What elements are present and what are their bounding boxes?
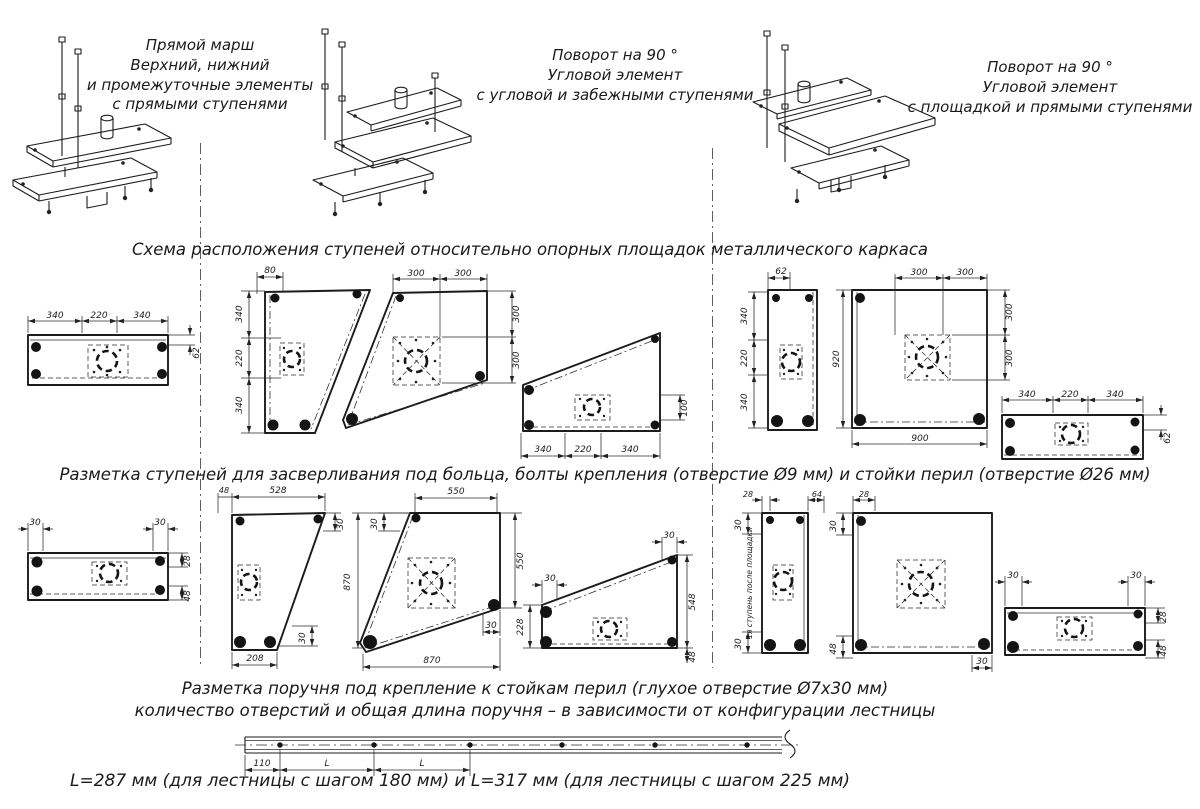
step-outline: [1005, 608, 1145, 655]
iso-bolts: [319, 91, 433, 216]
dim-label: 340: [740, 393, 750, 410]
dim-label: 48: [688, 651, 698, 663]
iso-steps: [313, 88, 471, 212]
dim-label: 28: [1159, 611, 1169, 623]
iso-corner-winder: [285, 20, 480, 240]
iso-posts: [322, 29, 438, 152]
dim-label: L: [419, 759, 424, 769]
handrail-heading: Разметка поручня под крепление к стойкам…: [85, 678, 985, 722]
drill-platform-square: 28 30 48 30: [830, 488, 1020, 698]
dim-label: 300: [910, 268, 927, 278]
dim-label: 28: [743, 490, 753, 499]
dim-label: 48: [183, 590, 193, 602]
dim-label: 300: [454, 269, 471, 279]
dim-label: 62: [775, 267, 787, 277]
step-outline: [232, 513, 325, 650]
layout-heading: Схема расположения ступеней относительно…: [80, 239, 980, 261]
dim-label: 28: [859, 490, 869, 499]
dim-label: 550: [447, 487, 464, 497]
dim-label: 30: [734, 519, 744, 531]
stairs-assembly-drawing: Прямой марш Верхний, нижний и промежуточ…: [0, 0, 1200, 809]
dimensions: 30 30 28 48: [995, 571, 1169, 658]
bolt-holes: [1007, 610, 1143, 654]
handrail-caption: L=287 мм (для лестницы с шагом 180 мм) и…: [30, 770, 890, 792]
variant-line: Поворот на 90 °: [470, 46, 760, 66]
iso-corner-platform: [735, 20, 945, 235]
step-outline: [768, 290, 817, 430]
bolt-holes: [32, 556, 166, 597]
dim-label: 340: [740, 307, 750, 324]
dim-label: 48: [1159, 645, 1169, 657]
dim-label: 228: [516, 618, 526, 635]
dim-label: 110: [253, 759, 270, 769]
dim-label: 300: [956, 268, 973, 278]
dim-label: 30: [154, 518, 166, 528]
bolt-holes: [764, 516, 806, 651]
handrail-bar: [235, 730, 798, 758]
dim-label: 220: [90, 311, 107, 321]
dim-label: 340: [46, 311, 63, 321]
bolt-holes: [854, 293, 985, 426]
dim-label: L: [324, 759, 329, 769]
post-platform: [780, 345, 802, 379]
post-platform: [897, 560, 945, 608]
dim-label: 30: [976, 657, 988, 667]
step-outline: [1002, 415, 1143, 459]
drilling-heading: Разметка ступеней для засверливания под …: [10, 464, 1200, 486]
dim-label: 870: [423, 656, 440, 666]
post-platform: [1055, 423, 1088, 445]
bolt-holes: [234, 515, 323, 649]
bolt-holes: [31, 342, 167, 379]
variant-line: Угловой элемент: [900, 78, 1200, 98]
step-outline: [762, 513, 808, 653]
post-platform: [593, 618, 627, 640]
dim-label: 28: [183, 555, 193, 567]
dim-label: 220: [574, 445, 591, 455]
post-platform: [905, 335, 950, 380]
post-platform: [393, 337, 440, 385]
dim-label: 340: [133, 311, 150, 321]
dim-label: 220: [740, 349, 750, 366]
bolt-holes: [855, 516, 990, 651]
dim-label: 62: [1163, 432, 1173, 444]
handrail-heading-line2: количество отверстий и общая длина поруч…: [85, 700, 985, 722]
post-platform: [280, 343, 304, 375]
variant-line: Поворот на 90 °: [900, 58, 1200, 78]
dim-label: 340: [1018, 390, 1035, 400]
drill-straight-right: 30 30 28 48: [995, 540, 1200, 680]
variant-line: Угловой элемент: [470, 66, 760, 86]
dim-label: 220: [235, 349, 245, 366]
dim-label: 48: [829, 643, 839, 655]
dim-label: 300: [407, 269, 424, 279]
dimensions: 340 220 340 62: [1002, 390, 1173, 444]
dim-label: 62: [192, 347, 202, 359]
dim-label: 30: [370, 518, 380, 530]
variant-line: с площадкой и прямыми ступенями: [900, 98, 1200, 118]
dim-label: 30: [1007, 571, 1019, 581]
variant-line: с угловой и забежными ступенями: [470, 86, 760, 106]
variant-label-corner-winder: Поворот на 90 ° Угловой элемент с углово…: [470, 46, 760, 105]
plan-platform-square: 300 300 920 300 300 900: [830, 262, 1020, 472]
plan-diagonal-step: 100 340 220 340: [505, 315, 740, 465]
dim-label: 920: [832, 350, 842, 367]
post-platform: [773, 565, 793, 600]
post-platform: [575, 395, 610, 420]
variant-label-corner-platform: Поворот на 90 ° Угловой элемент с площад…: [900, 58, 1200, 117]
dim-label: 528: [269, 486, 286, 496]
dim-label: 870: [343, 573, 353, 590]
drill-strip-step: 1я ступень после площадки 28 64 30 30: [700, 488, 840, 688]
dim-label: 300: [1005, 303, 1015, 320]
variant-label-straight: Прямой марш Верхний, нижний и промежуточ…: [85, 36, 315, 115]
post-platform: [1057, 617, 1092, 640]
step-outline: [343, 291, 487, 428]
dim-label: 80: [264, 266, 276, 276]
step-outline: [542, 555, 677, 648]
dim-label: 208: [246, 654, 263, 664]
post-platform: [238, 565, 260, 600]
break-symbol: [785, 730, 795, 758]
iso-bolts: [759, 80, 887, 203]
dim-label: 340: [1106, 390, 1123, 400]
dim-label: 30: [29, 518, 41, 528]
dim-label: 220: [1061, 390, 1078, 400]
dim-label: 30: [544, 574, 556, 584]
dim-label: 300: [1005, 349, 1015, 366]
dimensions: 62 340 220 340: [740, 267, 790, 428]
dimensions: 300 300 300 300: [393, 269, 522, 383]
dim-label: 548: [688, 593, 698, 610]
variant-line: Прямой марш: [85, 36, 315, 56]
step-outline: [28, 553, 168, 600]
step-outline: [360, 513, 500, 652]
dim-label: 340: [235, 396, 245, 413]
step-outline: [852, 290, 987, 428]
variant-line: Верхний, нижний: [85, 56, 315, 76]
dim-label: 900: [911, 434, 928, 444]
post-platform: [408, 558, 455, 608]
iso-steps: [13, 124, 171, 210]
dim-label: 30: [298, 632, 308, 644]
step-outline: [523, 333, 660, 431]
dim-label: 340: [621, 445, 638, 455]
dim-label: 30: [663, 531, 675, 541]
post-platform: [88, 345, 128, 377]
dim-label: 30: [1130, 571, 1142, 581]
step-after-platform-note: 1я ступень после площадки: [745, 527, 754, 639]
dim-label: 30: [734, 638, 744, 650]
dim-label: 48: [219, 486, 229, 495]
dim-label: 340: [235, 305, 245, 322]
dim-label: 30: [829, 520, 839, 532]
plan-straight-left: 340 220 340 62: [10, 290, 240, 405]
dim-label: 64: [812, 490, 822, 499]
dim-label: 100: [680, 399, 690, 416]
drill-straight-left: 30 30 28 48: [10, 495, 220, 645]
bolt-holes: [771, 294, 814, 427]
dim-label: 340: [534, 445, 551, 455]
dimensions: 30 30 28 48: [18, 518, 193, 602]
post-platform: [92, 562, 127, 585]
bolt-holes: [540, 556, 677, 649]
handrail-heading-line1: Разметка поручня под крепление к стойкам…: [85, 678, 985, 700]
drill-diagonal-step: 30 30 228 548 48: [495, 495, 710, 680]
variant-line: с прямыми ступенями: [85, 95, 315, 115]
variant-line: и промежуточные элементы: [85, 76, 315, 96]
